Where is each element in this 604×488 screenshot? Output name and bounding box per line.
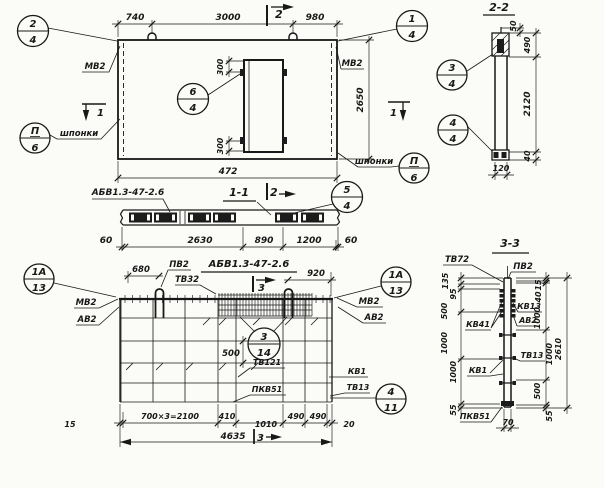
drawing-sheet: 300 300 740 3000 980 2 2 4 МВ2 1: [0, 0, 604, 488]
label-text: АВ2: [518, 316, 537, 325]
leader: [50, 135, 57, 139]
dim-text: 500: [222, 349, 240, 359]
dim-300-top: 300: [216, 56, 243, 77]
label-text: АБВ1.3-47-2.6: [91, 188, 165, 198]
dim-980: 980: [306, 13, 325, 23]
callout-bottom: 4: [449, 134, 457, 145]
dim-1000-b: 1000: [449, 360, 458, 383]
dim-40: 40: [523, 150, 532, 163]
dim-410: 410: [218, 412, 236, 421]
lifting-hook-right: [289, 33, 297, 40]
cut-marker-1-left: 1: [82, 104, 106, 121]
callout-3-14: 3 14: [240, 317, 287, 360]
panel-opening: [244, 60, 283, 152]
label-text: шпонки: [60, 129, 98, 139]
panel-body: [495, 56, 507, 150]
label-text: МВ2: [342, 59, 363, 69]
cut-marker-3-top: 3: [253, 276, 276, 294]
label-mv2-right: МВ2: [336, 47, 364, 69]
label-text: МВ2: [359, 297, 380, 307]
callout-top: 3: [449, 63, 456, 74]
label-text: ТВ121: [253, 358, 281, 367]
dim-490-a: 490: [287, 412, 305, 421]
label-text: ТВ72: [445, 255, 469, 265]
dim-95: 95: [449, 288, 458, 300]
label-kv1: КВ1: [329, 367, 368, 377]
callout-top: 1А: [389, 270, 404, 281]
callout-bottom: 4: [189, 103, 197, 114]
label-text: АВ2: [77, 315, 97, 325]
lifting-loop-left: [156, 289, 164, 318]
label-av2-left: АВ2: [76, 307, 119, 325]
dim-4635: 4635: [219, 432, 245, 442]
precast-panel-drawing: 300 300 740 3000 980 2 2 4 МВ2 1: [0, 0, 604, 488]
section-title: 3-3: [500, 237, 520, 250]
dim-50: 50: [509, 20, 518, 32]
dim-490: 490: [523, 36, 532, 54]
callout-top: 5: [344, 185, 351, 196]
callout-top: 4: [387, 387, 395, 398]
elevation-bottom-dims: 15 700×3=2100 410 1010 490 490 20 4635: [64, 404, 355, 447]
strip-section: [121, 210, 340, 225]
leader: [467, 54, 493, 71]
label-tv13: ТВ13: [330, 383, 376, 398]
plan-top-dims: 740 3000 980: [112, 13, 343, 37]
opening-clip: [240, 69, 244, 76]
callout-bottom: 4: [343, 201, 351, 212]
label-shponki-left: шпонки: [57, 119, 120, 139]
label-text: КВ1: [469, 366, 487, 375]
callout-top: 3: [261, 332, 268, 343]
dim-490-b: 490: [309, 412, 327, 421]
stirrup-marks: [499, 289, 516, 406]
label-tv32: ТВ32: [175, 275, 216, 294]
bottom-anchor: [501, 401, 514, 406]
callout-p6-right: П 6: [391, 153, 429, 184]
callout-4-11: 4 11: [376, 384, 406, 414]
callout-2-4: 2 4: [18, 16, 118, 47]
dim-text: 300: [216, 58, 225, 75]
dim-300-bottom: 300: [216, 136, 243, 156]
dim-15: 15: [64, 420, 76, 429]
label-text: ТВ32: [175, 275, 199, 285]
callout-top: П: [410, 156, 419, 167]
rebar-grid: [119, 289, 333, 402]
callout-1-4: 1 4: [338, 11, 428, 42]
label-text: КВ1: [348, 367, 366, 376]
label-text: ПВ2: [513, 262, 533, 272]
dim-1000-a: 1000: [440, 331, 449, 354]
dim-120: 120: [493, 164, 510, 173]
label-av2-right: АВ2: [338, 307, 386, 323]
callout-1a13-left: 1А 13: [24, 264, 116, 297]
leader: [48, 28, 117, 41]
opening-clip: [283, 69, 287, 76]
cut-marker-1-right: 1: [388, 102, 410, 121]
cut-label: 1: [390, 108, 397, 119]
section-3-3: 3-3 135 95 500 1000 1000 55 70 15 40 100…: [440, 237, 572, 432]
dim-2630: 2630: [187, 236, 212, 246]
callout-top: 4: [449, 118, 457, 129]
dim-70: 70: [496, 409, 519, 432]
label-pkv51: ПКВ51: [233, 385, 286, 402]
leader: [208, 74, 240, 95]
label-av2-33: АВ2: [513, 315, 540, 326]
opening-clip: [283, 137, 287, 144]
label-kv1-33: КВ1: [467, 360, 503, 376]
reinforcement-elevation: АБВ1.3-47-2.6 3 МВ2 АВ2 1А 13 680: [24, 259, 411, 447]
label-mv2-left: МВ2: [82, 46, 120, 72]
cut-label: 2: [270, 186, 278, 199]
dim-2610: 2610: [554, 337, 563, 360]
bar-bend-marks: [126, 318, 318, 370]
callout-top: П: [31, 126, 40, 137]
dim-3000: 3000: [215, 13, 240, 23]
callout-bottom: 4: [29, 35, 37, 46]
cut-label: 1: [97, 108, 104, 119]
dim-2650: 2650: [339, 36, 374, 163]
label-text: ТВ13: [521, 351, 544, 360]
label-text: шпонки: [355, 157, 393, 167]
dim-text: 2650: [356, 87, 366, 112]
label-text: МВ2: [85, 62, 106, 72]
dim-1000-b: 1000: [545, 342, 554, 365]
label-text: АВ2: [364, 313, 384, 323]
label-kv13: КВ13: [513, 302, 542, 312]
panel-edge-section: [504, 278, 511, 407]
section-title: 2-2: [489, 1, 509, 14]
cut-marker-2-top: 2: [267, 4, 294, 26]
leader: [468, 127, 492, 151]
dim-55: 55: [449, 404, 458, 416]
dim-55: 55: [545, 410, 554, 422]
section-3-3-left-dims: 135 95 500 1000 1000 55: [440, 272, 503, 416]
callout-bottom: 11: [384, 403, 398, 414]
section-2-2: 2-2 50 490 2120 40 120: [483, 1, 541, 180]
section-1-1-dims: 60 2630 890 1200 60: [100, 227, 358, 251]
callout-6-4: 6 4: [178, 74, 241, 115]
label-kv41: КВ41: [465, 299, 503, 330]
dim-60-right: 60: [345, 236, 358, 246]
cut-label: 2: [275, 8, 283, 21]
dim-15: 15: [534, 279, 543, 291]
mesh-zone: [219, 293, 312, 316]
panel-mark-label: АБВ1.3-47-2.6: [91, 188, 170, 212]
section-title: 1-1: [229, 186, 249, 199]
label-text: ПВ2: [169, 260, 189, 270]
label-text: ПКВ51: [460, 412, 490, 421]
cut-label: 3: [258, 283, 265, 294]
label-mv2-left: МВ2: [74, 298, 118, 308]
callout-top: 1А: [32, 267, 47, 278]
dim-text: 70: [502, 418, 514, 427]
callout-4-4: 4 4: [438, 115, 492, 151]
callout-1a13-right: 1А 13: [334, 267, 411, 298]
callout-bottom: 6: [32, 143, 39, 154]
plan-view: 300 300 740 3000 980 2 2 4 МВ2 1: [18, 4, 494, 184]
label-pv2-33: ПВ2: [508, 262, 536, 279]
label-text: КВ41: [466, 320, 490, 329]
hollow-cores: [129, 213, 324, 223]
callout-bottom: 13: [32, 283, 46, 294]
lifting-hook-left: [148, 33, 156, 40]
dim-60-left: 60: [100, 236, 113, 246]
label-mv2-right: МВ2: [337, 297, 383, 307]
dim-1010: 1010: [255, 420, 278, 429]
label-text: КВ13: [517, 302, 541, 311]
dim-text: 680: [132, 265, 150, 275]
callout-bottom: 4: [448, 79, 456, 90]
label-text: ТВ13: [347, 383, 370, 392]
panel-mark-title: АБВ1.3-47-2.6: [208, 259, 290, 270]
leader: [338, 29, 397, 41]
leader: [240, 317, 287, 331]
dim-500: 500: [440, 302, 449, 319]
callout-5-4: 5 4: [277, 182, 363, 218]
callout-top: 1: [409, 14, 416, 25]
dim-500: 500: [533, 382, 542, 399]
callout-top: 2: [30, 19, 37, 30]
callout-p6-left: П 6: [20, 123, 57, 154]
cut-label: 3: [257, 433, 264, 444]
label-text: ПКВ51: [252, 385, 282, 394]
callout-bottom: 13: [389, 286, 403, 297]
section-3-3-right-dims: 15 40 1000 1000 500 55 2610: [516, 272, 572, 422]
dim-890: 890: [255, 236, 274, 246]
dim-740: 740: [126, 13, 145, 23]
section-1-1: АБВ1.3-47-2.6 1-1 2 5 4 60 2630: [91, 182, 363, 252]
dim-135: 135: [441, 272, 450, 289]
dim-1200: 1200: [296, 236, 321, 246]
label-shponki-right: шпонки: [338, 153, 393, 167]
callout-bottom: 4: [408, 30, 416, 41]
embed-plate: [497, 39, 504, 53]
callout-3-4: 3 4: [437, 54, 493, 90]
callout-bottom: 6: [411, 173, 418, 184]
label-text: МВ2: [76, 298, 97, 308]
dim-2120: 2120: [523, 91, 533, 116]
label-tv13-33: ТВ13: [514, 351, 545, 361]
leader: [54, 283, 116, 297]
opening-clip: [240, 137, 244, 144]
dim-472: 472: [115, 161, 340, 183]
dim-20: 20: [343, 420, 355, 429]
dim-680: 680: [124, 265, 163, 283]
callout-top: 6: [190, 87, 197, 98]
label-pkv51-33: ПКВ51: [460, 407, 502, 422]
cut-marker-2-bottom: 2: [267, 183, 296, 200]
dim-700x3: 700×3=2100: [141, 412, 199, 421]
dim-text: 300: [216, 137, 225, 154]
dim-text: 472: [218, 167, 238, 177]
dim-text: 920: [307, 269, 325, 279]
